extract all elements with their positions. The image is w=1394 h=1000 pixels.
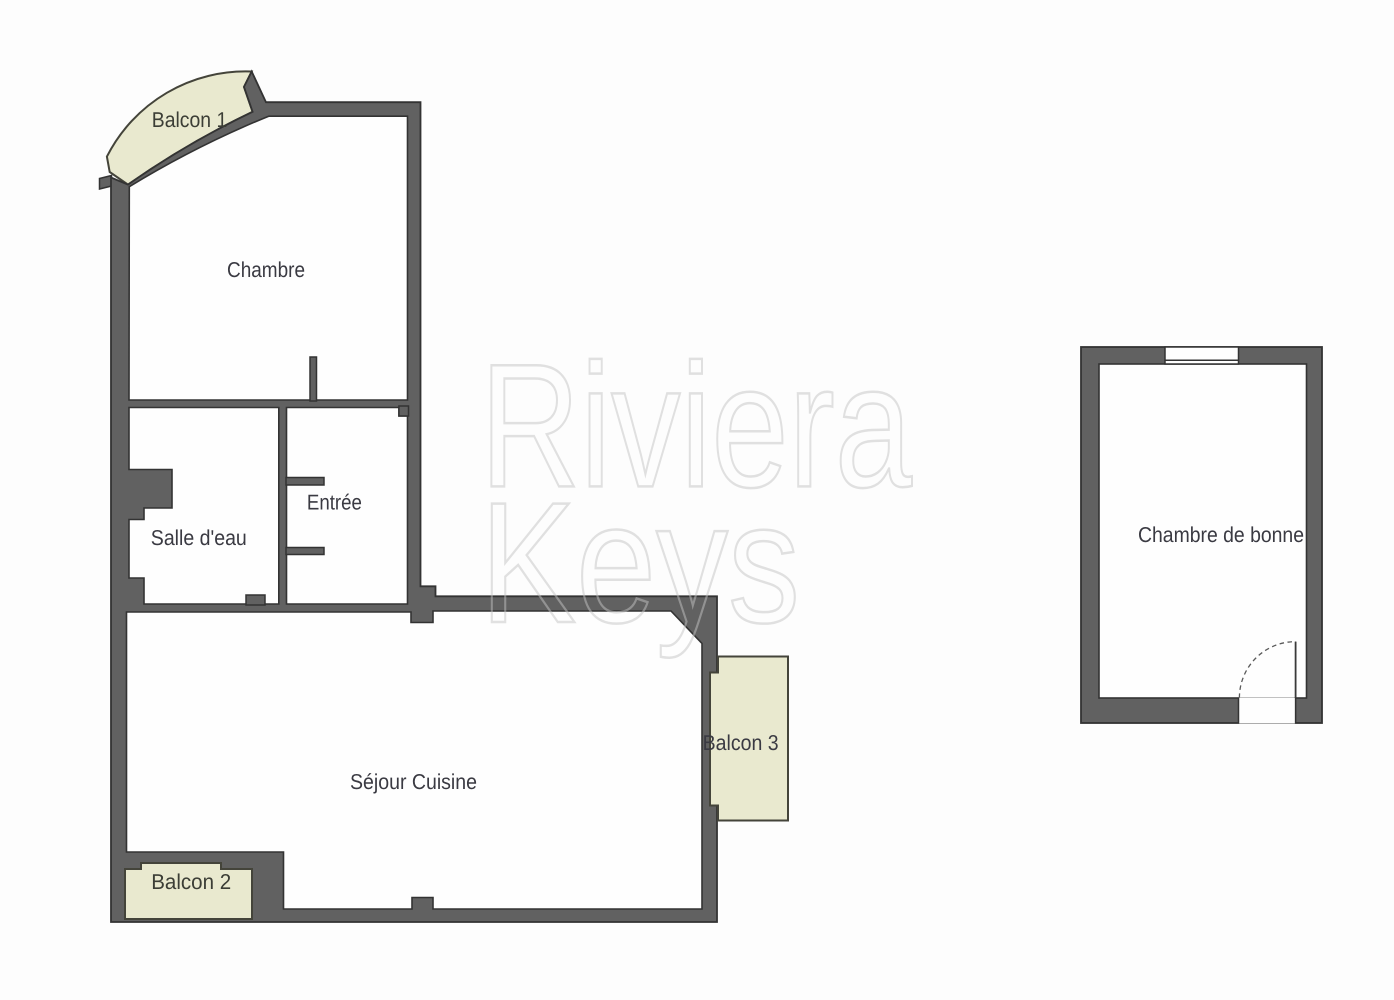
svg-text:Keys: Keys	[480, 467, 800, 659]
svg-text:Chambre: Chambre	[227, 258, 305, 282]
svg-text:Chambre de bonne: Chambre de bonne	[1138, 523, 1304, 547]
svg-text:Salle d'eau: Salle d'eau	[151, 526, 247, 550]
svg-text:Entrée: Entrée	[307, 491, 362, 515]
svg-text:Balcon 2: Balcon 2	[151, 870, 231, 894]
svg-text:Balcon 3: Balcon 3	[703, 731, 779, 755]
svg-text:Séjour Cuisine: Séjour Cuisine	[350, 770, 477, 794]
svg-text:Balcon 1: Balcon 1	[152, 108, 228, 132]
